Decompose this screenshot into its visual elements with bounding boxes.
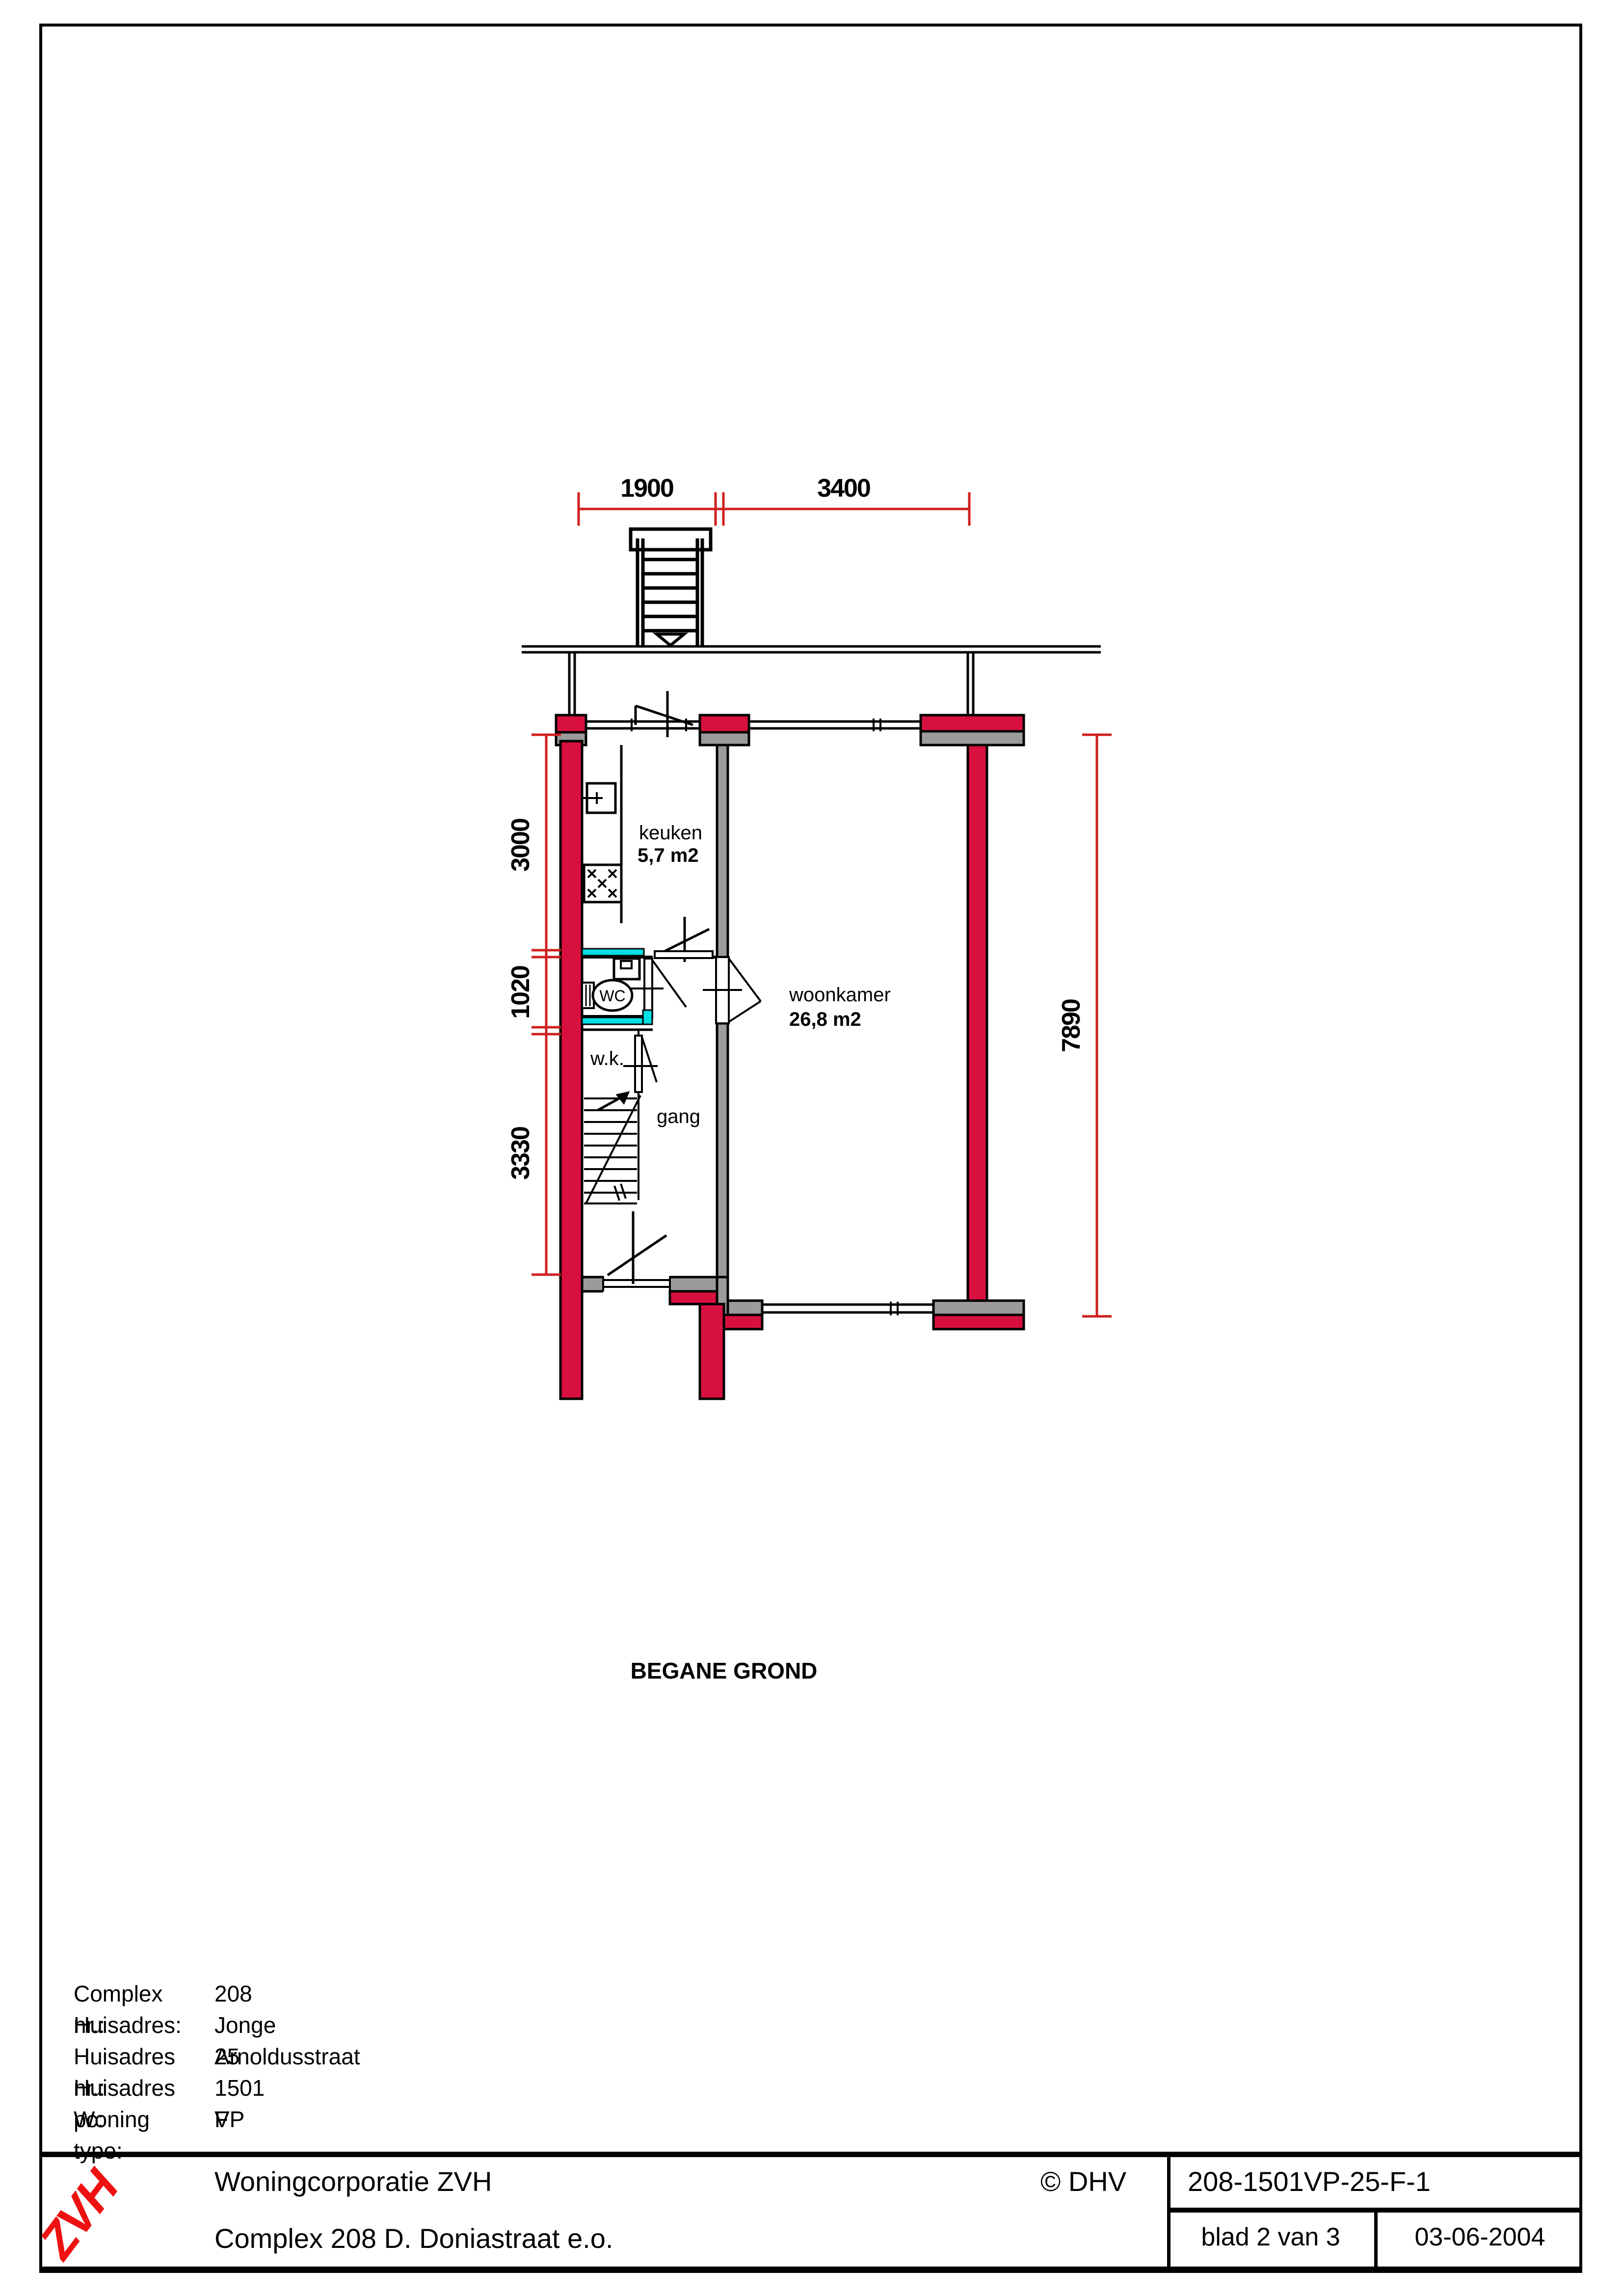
footer-divider-vertical-2 bbox=[1374, 2208, 1378, 2273]
footer-company: Woningcorporatie ZVH bbox=[214, 2165, 492, 2197]
info-value: F bbox=[214, 2104, 228, 2135]
page-border bbox=[39, 24, 1582, 2269]
info-label: Huisadres: bbox=[74, 2009, 182, 2041]
footer-top-rule bbox=[39, 2152, 1582, 2157]
footer-bottom-rule bbox=[39, 2267, 1582, 2273]
footer-project: Complex 208 D. Doniastraat e.o. bbox=[214, 2222, 613, 2254]
footer-sheet-number: blad 2 van 3 bbox=[1167, 2222, 1374, 2252]
info-value: 25 bbox=[214, 2041, 239, 2072]
footer-drawing-code: 208-1501VP-25-F-1 bbox=[1188, 2165, 1431, 2197]
info-value: 208 bbox=[214, 1978, 252, 2009]
drawing-sheet: 1900 3400 bbox=[0, 0, 1623, 2296]
footer-copyright: © DHV bbox=[1040, 2165, 1148, 2197]
footer-date: 03-06-2004 bbox=[1378, 2222, 1582, 2252]
